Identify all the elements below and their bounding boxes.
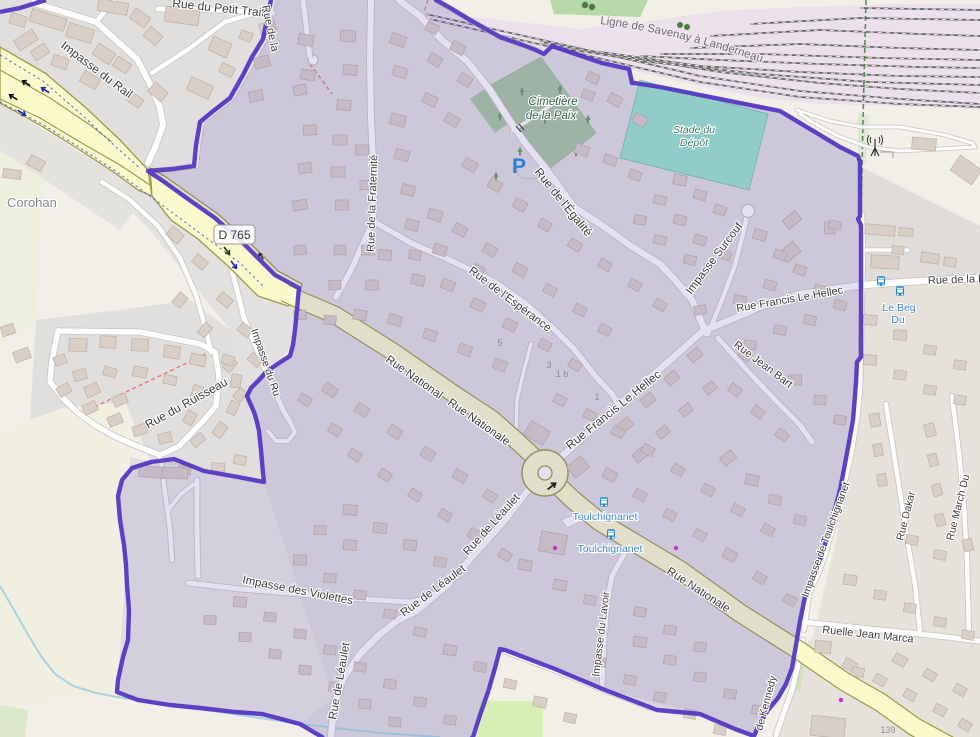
svg-text:1: 1 <box>594 392 599 402</box>
svg-text:3: 3 <box>546 360 551 370</box>
svg-text:P: P <box>512 155 526 178</box>
svg-text:Cimetière: Cimetière <box>528 96 577 108</box>
svg-text:Rue de la B: Rue de la B <box>928 273 980 287</box>
svg-text:Dépôt: Dépôt <box>680 137 709 149</box>
svg-text:Le Beg: Le Beg <box>882 302 915 314</box>
svg-text:Toulchignanet: Toulchignanet <box>578 543 643 555</box>
svg-text:Toulchignanet: Toulchignanet <box>573 511 638 523</box>
svg-text:1 b: 1 b <box>556 369 569 379</box>
svg-text:Corohan: Corohan <box>7 195 57 210</box>
svg-text:de la Paix: de la Paix <box>526 110 578 122</box>
svg-text:5: 5 <box>497 338 502 348</box>
svg-text:139: 139 <box>880 725 895 735</box>
svg-text:Du: Du <box>891 314 905 326</box>
svg-text:D 765: D 765 <box>218 228 250 242</box>
svg-text:Stade du: Stade du <box>673 124 715 136</box>
